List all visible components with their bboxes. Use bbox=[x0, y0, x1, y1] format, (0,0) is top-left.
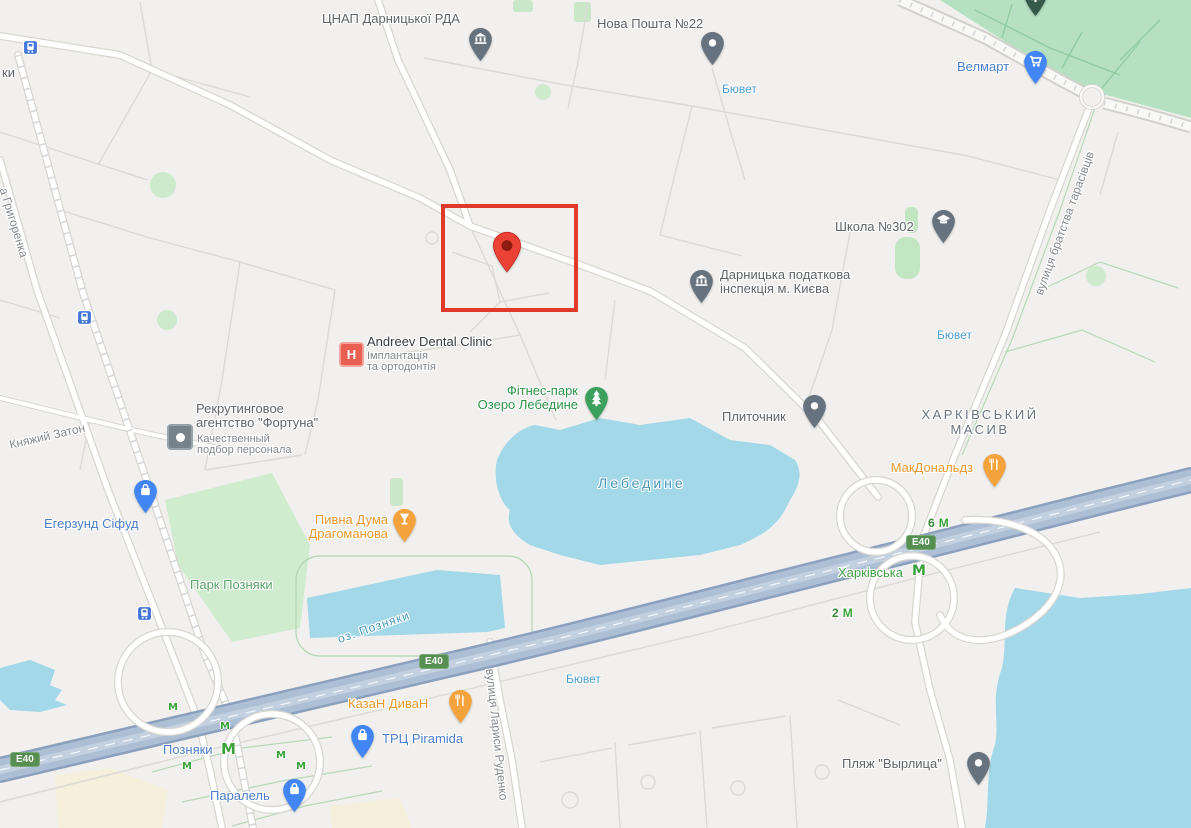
poi-label-piramida[interactable]: ТРЦ Piramida bbox=[382, 732, 463, 746]
beer-pub-pin-icon[interactable] bbox=[392, 508, 417, 543]
agency-icon-dot bbox=[176, 433, 185, 442]
poi-label-dental-clinic[interactable]: Andreev Dental Clinic bbox=[367, 335, 492, 349]
poi-label-kazan-divan[interactable]: КазаН ДиваН bbox=[348, 697, 428, 711]
pyvna-duma-line1: Пивна Дума bbox=[290, 513, 388, 527]
metro-entrance-icon[interactable]: М bbox=[220, 721, 230, 732]
metro-entrance-icon[interactable]: М bbox=[276, 750, 286, 761]
egersund-shopping-bag-pin-icon[interactable] bbox=[133, 479, 158, 514]
poi-label-fortuna[interactable]: Рекрутинговое агентство "Фортуна" bbox=[196, 402, 318, 430]
metro-icon: М bbox=[843, 606, 853, 620]
fitness-park-line2: Озеро Лебедине bbox=[474, 398, 578, 412]
metro-entrance-icon[interactable]: М bbox=[182, 761, 192, 772]
metro-exit-6[interactable]: 6М bbox=[928, 516, 949, 530]
metro-label-pozniaky[interactable]: Позняки bbox=[163, 743, 213, 757]
school-pin-icon[interactable] bbox=[931, 209, 956, 244]
area-label-park-pozniaky: Парк Позняки bbox=[190, 578, 273, 592]
kharkivskyi-line1: ХАРКІВСЬКИЙ bbox=[918, 407, 1042, 422]
fortuna-line2: агентство "Фортуна" bbox=[196, 416, 318, 430]
metro-entrance-icon[interactable]: М bbox=[296, 761, 306, 772]
poi-label-parallel[interactable]: Паралель bbox=[210, 789, 270, 803]
area-label-kharkivskyi-masyv: ХАРКІВСЬКИЙ МАСИВ bbox=[918, 407, 1042, 437]
metro-icon: М bbox=[939, 516, 949, 530]
kharkivskyi-line2: МАСИВ bbox=[918, 422, 1042, 437]
government-pin-icon[interactable] bbox=[468, 27, 493, 62]
agency-icon[interactable] bbox=[167, 424, 193, 450]
poi-label-plytochnyk[interactable]: Плиточник bbox=[722, 410, 786, 424]
hospital-icon[interactable]: H bbox=[339, 342, 364, 367]
pyvna-duma-line2: Драгоманова bbox=[290, 527, 388, 541]
park-pin-icon[interactable] bbox=[1023, 0, 1048, 17]
metro-label-kharkivska[interactable]: Харківська bbox=[838, 566, 903, 580]
poi-label-pyvna-duma[interactable]: Пивна Дума Драгоманова bbox=[290, 513, 388, 541]
beach-pin-icon[interactable] bbox=[966, 751, 991, 786]
poi-label-cnap[interactable]: ЦНАП Дарницької РДА bbox=[322, 12, 460, 26]
fortuna-subtitle-line2: подбор персонала bbox=[197, 445, 292, 456]
transit-stop-icon[interactable] bbox=[137, 606, 152, 621]
poi-label-mcdonalds[interactable]: МакДональдз bbox=[857, 461, 973, 475]
poi-label-byuvet-right[interactable]: Бювет bbox=[937, 328, 972, 342]
hospital-icon-letter: H bbox=[347, 347, 356, 362]
road-shield-e40: E40 bbox=[419, 654, 449, 669]
metro-icon[interactable]: М bbox=[221, 740, 236, 758]
metro-exit-number: 2 bbox=[832, 606, 839, 620]
mcdonalds-restaurant-pin-icon[interactable] bbox=[982, 453, 1007, 488]
water-label-lebedyne: Лебедине bbox=[598, 476, 686, 490]
parallel-shop-pin-icon[interactable] bbox=[282, 778, 307, 813]
post-office-pin-icon[interactable] bbox=[700, 31, 725, 66]
metro-exit-2[interactable]: 2М bbox=[832, 606, 853, 620]
destination-pin-icon[interactable] bbox=[492, 231, 522, 273]
fitness-park-line1: Фітнес-парк bbox=[474, 384, 578, 398]
poi-label-nova-poshta[interactable]: Нова Пошта №22 bbox=[597, 17, 703, 31]
kazan-restaurant-pin-icon[interactable] bbox=[448, 689, 473, 724]
metro-entrance-icon[interactable]: М bbox=[168, 702, 178, 713]
fortuna-line1: Рекрутинговое bbox=[196, 402, 318, 416]
map-canvas[interactable]: H ЦНАП Дарницької РДА Нова Пошта №22 Бюв… bbox=[0, 0, 1191, 828]
fitness-park-tree-pin-icon[interactable] bbox=[584, 386, 609, 421]
poi-label-egersund[interactable]: Егерзунд Сіфуд bbox=[44, 517, 139, 531]
tax-office-pin-icon[interactable] bbox=[689, 269, 714, 304]
piramida-mall-pin-icon[interactable] bbox=[350, 724, 375, 759]
poi-label-fitness-park[interactable]: Фітнес-парк Озеро Лебедине bbox=[474, 384, 578, 412]
poi-label-beach[interactable]: Пляж "Вырлица" bbox=[842, 757, 942, 771]
metro-exit-number: 6 bbox=[928, 516, 935, 530]
metro-icon[interactable]: М bbox=[912, 563, 926, 579]
transit-stop-icon[interactable] bbox=[77, 310, 92, 325]
tax-office-line2: інспекція м. Києва bbox=[720, 282, 850, 296]
poi-label-byuvet-top[interactable]: Бювет bbox=[722, 82, 757, 96]
dental-subtitle-line2: та ортодонтія bbox=[367, 362, 436, 373]
transit-stop-icon[interactable] bbox=[23, 40, 38, 55]
plytochnyk-pin-icon[interactable] bbox=[802, 394, 827, 429]
supermarket-cart-pin-icon[interactable] bbox=[1023, 50, 1048, 85]
poi-label-school[interactable]: Школа №302 bbox=[835, 220, 914, 234]
tax-office-line1: Дарницька податкова bbox=[720, 268, 850, 282]
road-shield-e40: E40 bbox=[906, 535, 936, 550]
poi-label-velmart[interactable]: Велмарт bbox=[957, 60, 1009, 74]
road-shield-e40: E40 bbox=[10, 752, 40, 767]
poi-label-tax-office[interactable]: Дарницька податкова інспекція м. Києва bbox=[720, 268, 850, 296]
poi-label-byuvet-bottom[interactable]: Бювет bbox=[566, 672, 601, 686]
street-label-partial: ки bbox=[2, 66, 15, 80]
